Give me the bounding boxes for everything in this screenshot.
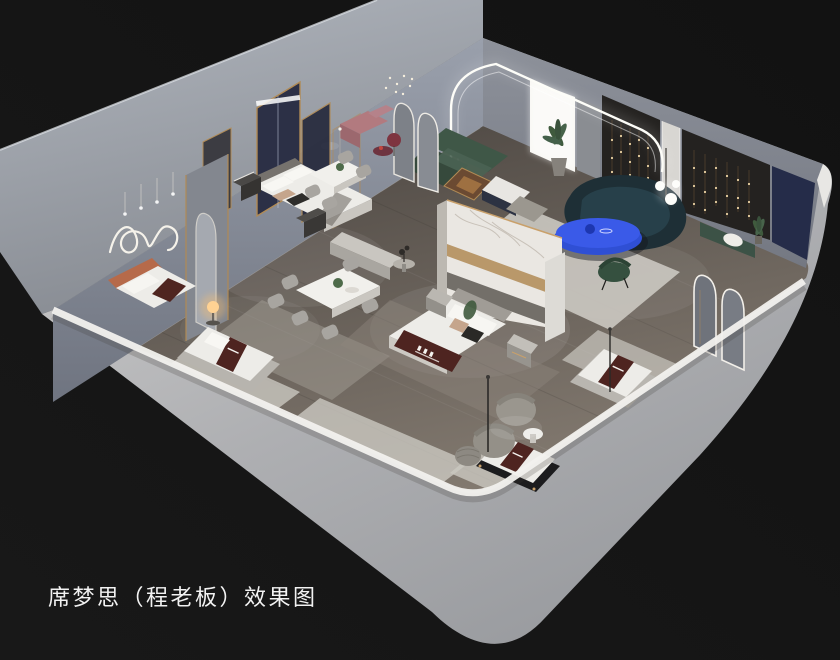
burgundy-side-table [373, 146, 393, 156]
wardrobe-panel [545, 252, 565, 342]
render-canvas: 席梦思（程老板）效果图 [0, 0, 840, 660]
blue-oval-table [556, 218, 640, 248]
plant-centerpiece [333, 278, 343, 288]
blue-vase [585, 224, 595, 234]
red-cup [379, 146, 383, 150]
tableware [345, 287, 359, 293]
render-caption: 席梦思（程老板）效果图 [48, 586, 318, 612]
showroom-render [0, 0, 840, 660]
plant-centerpiece [336, 163, 344, 171]
burgundy-plant [387, 133, 401, 147]
pendant-light [338, 127, 341, 130]
